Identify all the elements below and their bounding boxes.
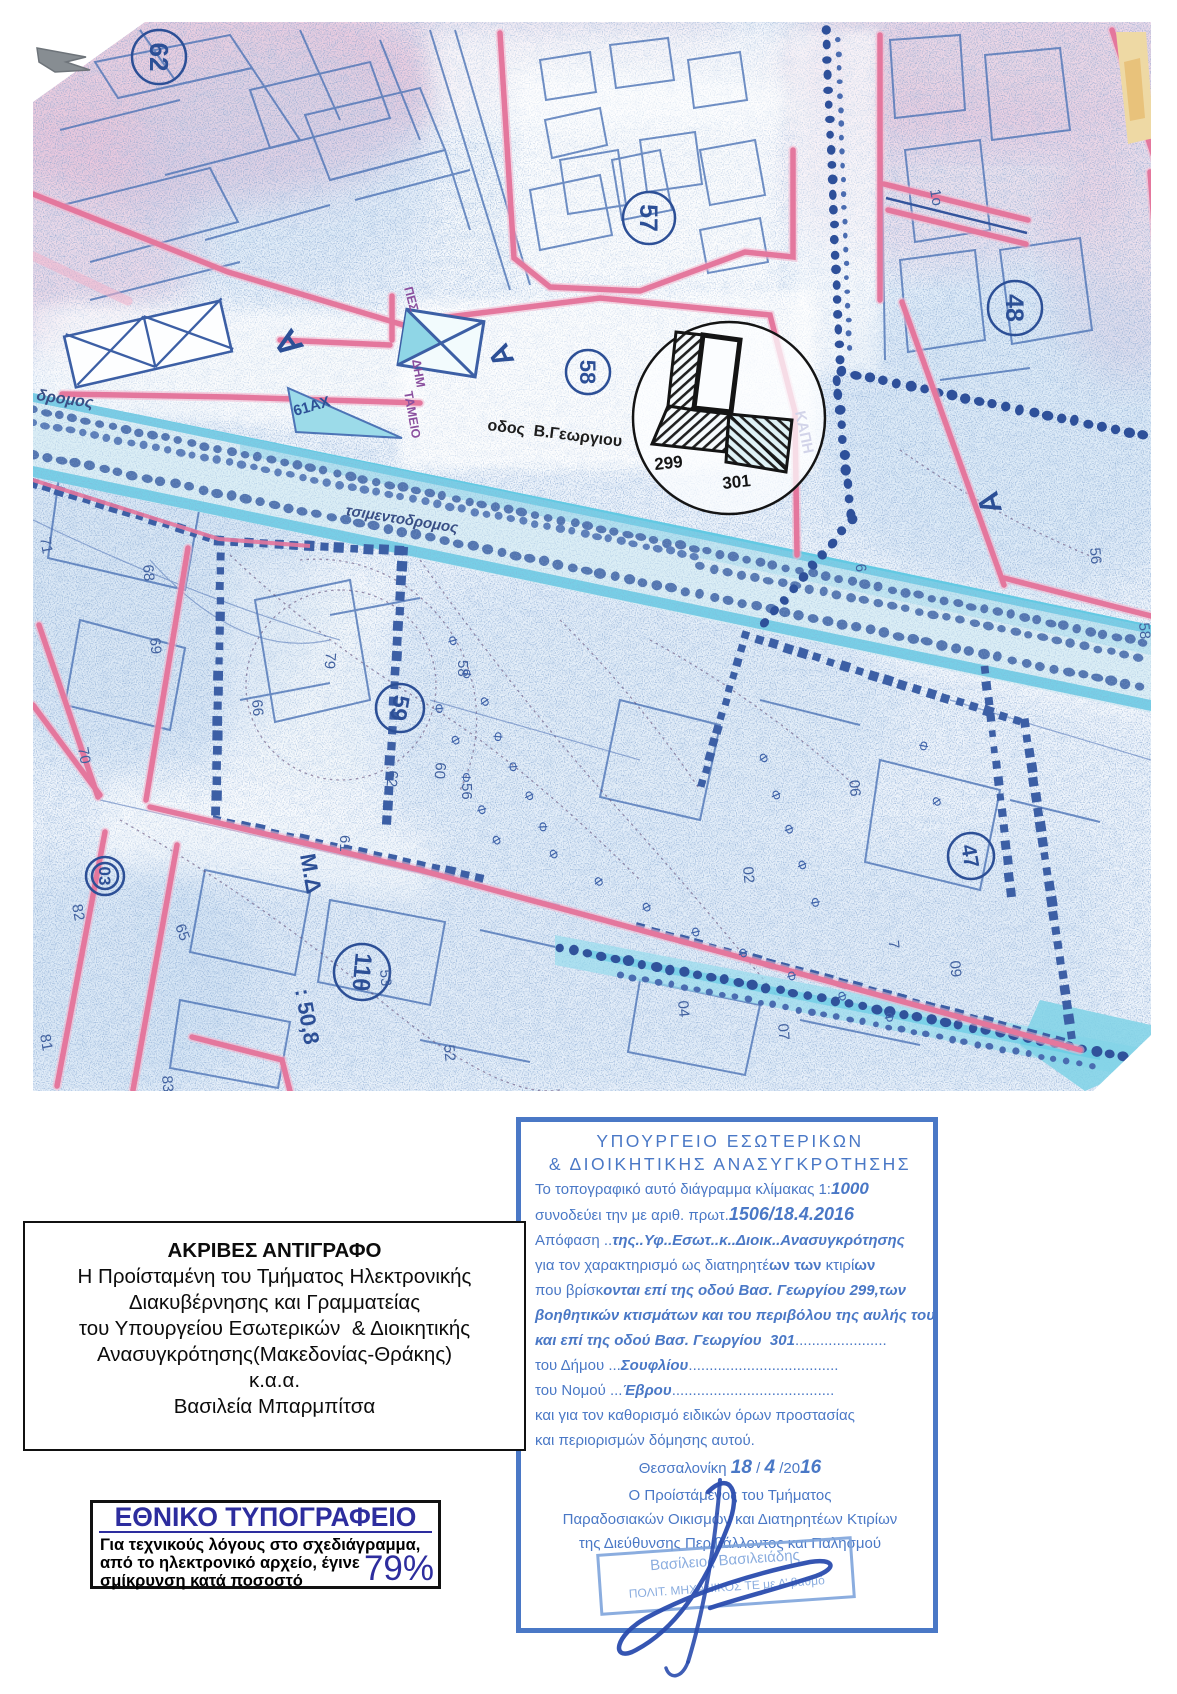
svg-text:62: 62 [144,43,174,72]
svg-text:56: 56 [1086,547,1104,565]
svg-text:53: 53 [376,969,394,987]
svg-text:71: 71 [36,536,56,555]
svg-text:70: 70 [74,746,94,765]
svg-text:1ο: 1ο [926,188,946,207]
svg-text:82: 82 [68,903,88,922]
svg-text:81: 81 [36,1033,56,1052]
svg-text:04: 04 [674,1000,692,1018]
svg-text:Φ: Φ [431,703,447,715]
svg-text:90: 90 [847,779,865,797]
svg-text:07: 07 [774,1023,792,1041]
svg-text:59: 59 [385,693,415,723]
svg-text:02: 02 [739,866,757,884]
svg-text:66: 66 [248,699,266,717]
svg-text:Φ: Φ [490,731,506,743]
svg-text:09: 09 [946,960,964,978]
svg-text:57: 57 [634,204,662,232]
svg-text:48: 48 [1000,294,1028,322]
svg-text:58: 58 [1135,622,1153,640]
svg-text:299: 299 [653,452,683,474]
svg-text:69: 69 [146,637,164,655]
svg-text:47: 47 [956,843,983,870]
svg-text:79: 79 [321,652,339,670]
svg-text:61: 61 [336,835,353,852]
svg-text:62: 62 [383,770,401,788]
svg-text:52: 52 [440,1044,458,1062]
svg-text:Φ: Φ [458,772,474,783]
svg-text:83: 83 [158,1075,176,1093]
svg-text:58: 58 [575,360,600,384]
svg-text:68: 68 [139,564,157,582]
svg-text:60: 60 [431,762,449,780]
svg-text:11θ: 11θ [346,952,376,993]
svg-text:56: 56 [458,783,475,800]
svg-text:Φ: Φ [535,821,551,832]
svg-text:03: 03 [95,867,114,886]
svg-text:301: 301 [721,471,751,493]
svg-text:Φ: Φ [505,761,521,773]
